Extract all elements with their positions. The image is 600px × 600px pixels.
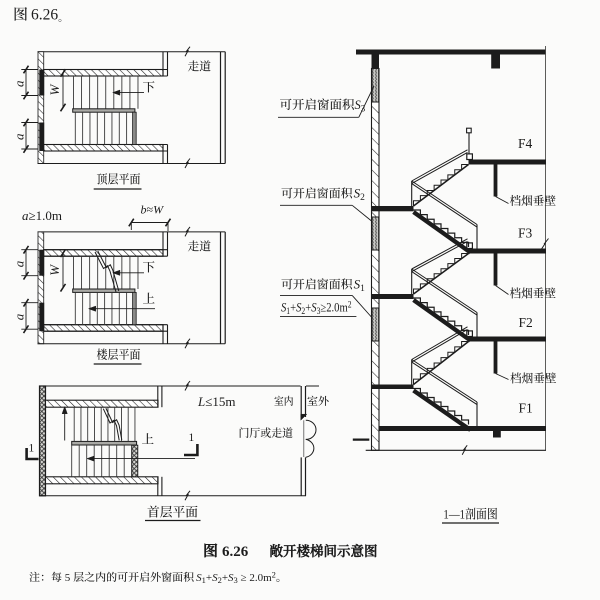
svg-text:a: a bbox=[12, 313, 27, 320]
svg-text:可开启窗面积: 可开启窗面积 bbox=[281, 185, 353, 202]
svg-text:1—1剖面图: 1—1剖面图 bbox=[443, 504, 497, 523]
svg-text:下: 下 bbox=[143, 78, 156, 96]
svg-text:a: a bbox=[12, 260, 27, 267]
svg-text:上: 上 bbox=[143, 289, 156, 307]
svg-text:b≈W: b≈W bbox=[141, 203, 165, 217]
svg-text:上: 上 bbox=[142, 430, 155, 448]
svg-text:F2: F2 bbox=[519, 315, 533, 330]
svg-text:首层平面: 首层平面 bbox=[147, 502, 198, 521]
svg-text:室内: 室内 bbox=[274, 393, 294, 409]
svg-text:可开启窗面积S3: 可开启窗面积S3 bbox=[280, 95, 366, 114]
svg-text:W: W bbox=[47, 84, 62, 96]
svg-text:a: a bbox=[12, 80, 27, 87]
svg-text:顶层平面: 顶层平面 bbox=[97, 170, 141, 188]
svg-text:下: 下 bbox=[143, 258, 156, 276]
svg-text:图6.26: 图6.26 bbox=[203, 540, 249, 561]
svg-text:走道: 走道 bbox=[188, 238, 212, 255]
svg-text:档烟垂壁: 档烟垂壁 bbox=[510, 192, 557, 209]
svg-text:S1+S2+S3≥2.0m2: S1+S2+S3≥2.0m2 bbox=[281, 300, 352, 316]
svg-text:档烟垂壁: 档烟垂壁 bbox=[510, 370, 557, 387]
svg-text:a: a bbox=[12, 133, 27, 140]
svg-text:F3: F3 bbox=[518, 226, 533, 241]
svg-text:室外: 室外 bbox=[307, 393, 329, 409]
svg-text:F1: F1 bbox=[519, 401, 533, 416]
svg-text:可开启窗面积: 可开启窗面积 bbox=[281, 275, 353, 292]
svg-text:a≥1.0m: a≥1.0m bbox=[22, 208, 62, 223]
svg-text:W: W bbox=[47, 264, 62, 276]
svg-text:1: 1 bbox=[189, 432, 195, 444]
svg-text:注：每 5 层之内的可开启外窗面积S1+S2+S3 ≥ 2.: 注：每 5 层之内的可开启外窗面积S1+S2+S3 ≥ 2.0m2。 bbox=[29, 569, 287, 585]
svg-text:1: 1 bbox=[29, 443, 35, 455]
svg-text:F4: F4 bbox=[518, 136, 533, 151]
svg-text:档烟垂壁: 档烟垂壁 bbox=[510, 285, 557, 302]
svg-text:楼层平面: 楼层平面 bbox=[97, 345, 141, 363]
svg-text:门厅或走道: 门厅或走道 bbox=[239, 425, 294, 441]
svg-text:敞开楼梯间示意图: 敞开楼梯间示意图 bbox=[270, 541, 378, 561]
svg-text:走道: 走道 bbox=[188, 58, 212, 75]
svg-text:L≤15m: L≤15m bbox=[197, 394, 235, 409]
